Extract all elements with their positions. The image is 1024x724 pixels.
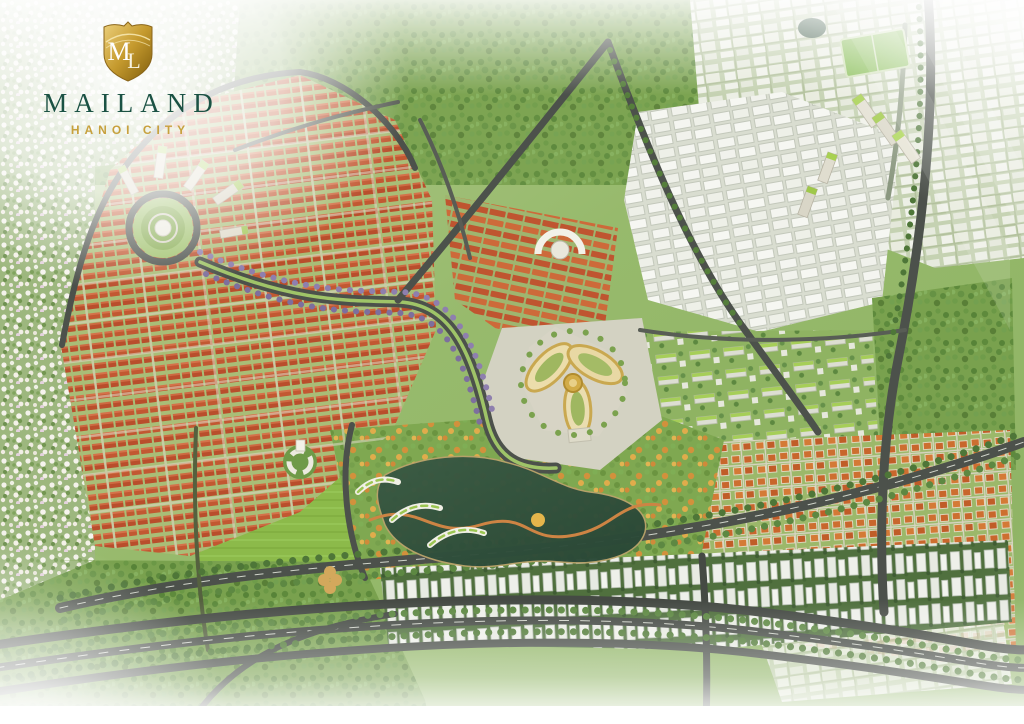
masterplan-map bbox=[0, 0, 1024, 724]
haze-overlays bbox=[0, 0, 1024, 724]
masterplan-poster: M L MAILAND HANOI CITY bbox=[0, 0, 1024, 724]
